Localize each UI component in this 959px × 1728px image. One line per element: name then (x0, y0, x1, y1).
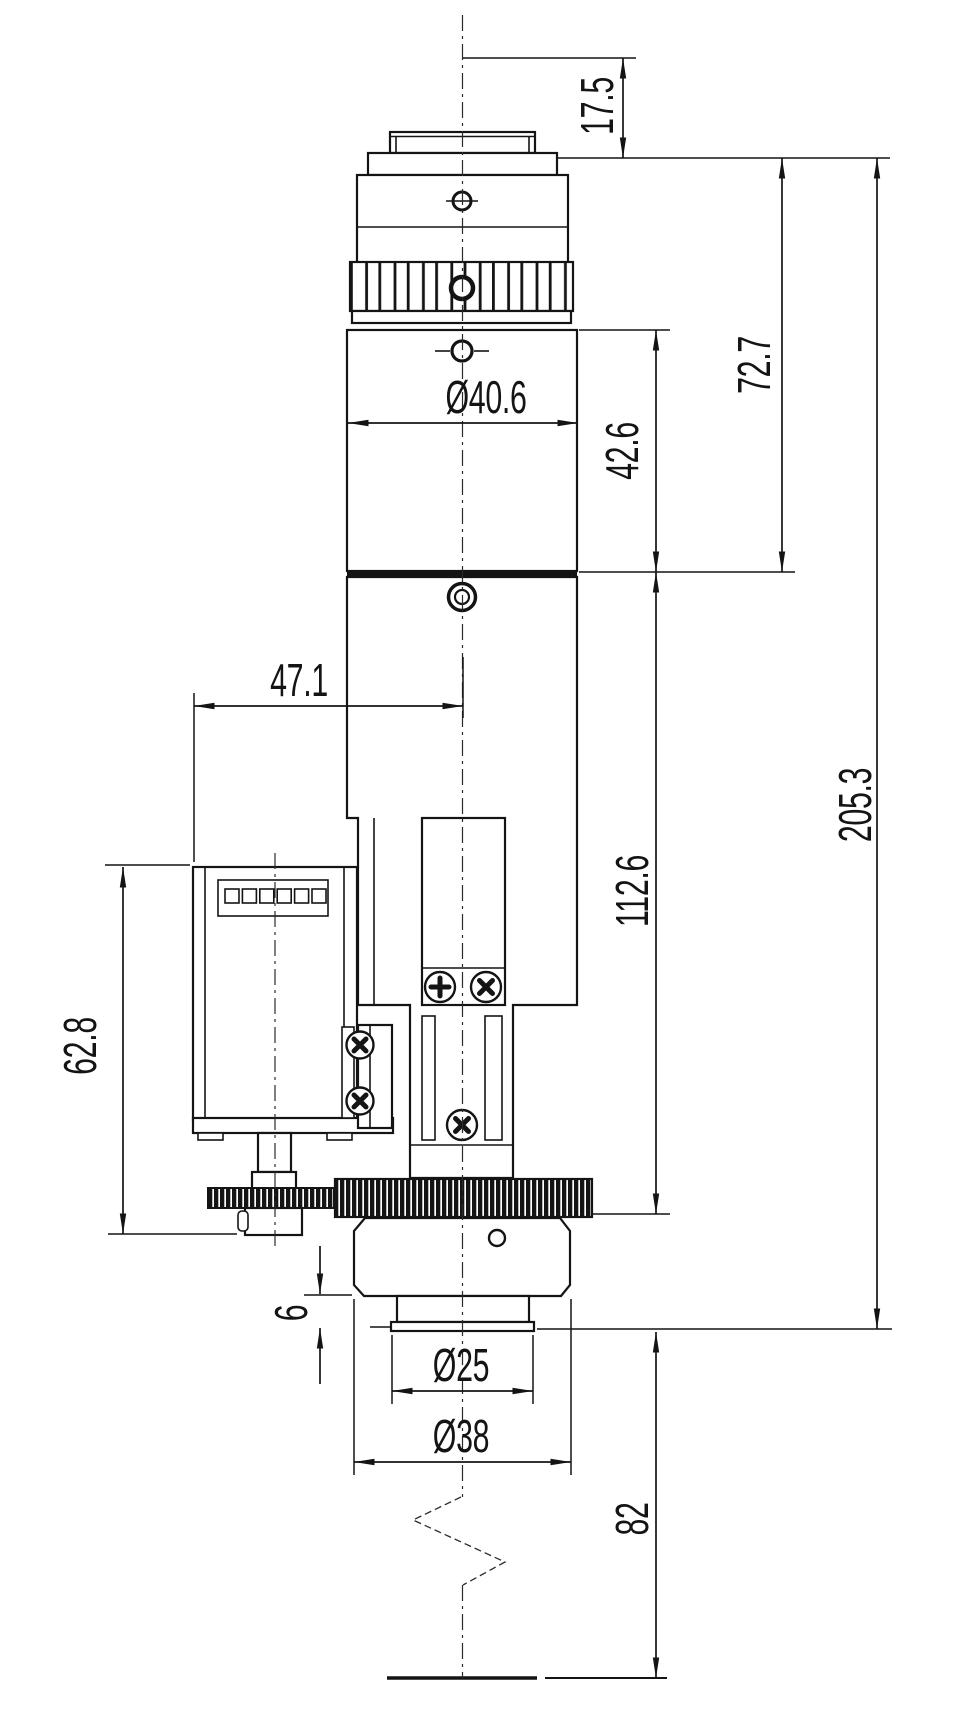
dim-mount-stub-height: 17.5 (573, 58, 624, 158)
dim-upper-body-height: 42.6 (598, 330, 656, 572)
bracket-screw-upper (347, 1032, 374, 1059)
dim-label-82: 82 (608, 1502, 659, 1535)
dim-label-40-6: Ø40.6 (445, 373, 526, 424)
dim-lower-body-height: 112.6 (608, 572, 659, 1214)
dim-label-42-6: 42.6 (598, 422, 649, 480)
pinion-hub (245, 1208, 302, 1235)
dim-head-assembly-height: 72.7 (730, 158, 782, 572)
focus-gear-ring (335, 1179, 592, 1217)
break-line (413, 1497, 505, 1585)
knurled-ring (350, 262, 573, 323)
dim-front-step-height: 6 (267, 1246, 320, 1384)
motor-foot-left (198, 1133, 223, 1140)
guide-rail-right (485, 1016, 502, 1140)
dim-working-distance: 82 (608, 1332, 659, 1678)
dim-overall-length: 205.3 (831, 158, 882, 1329)
technical-drawing: 17.5 72.7 42.6 112.6 205.3 62.8 (0, 0, 959, 1728)
dim-front-barrel-diameter: Ø38 (354, 1412, 571, 1463)
dim-front-flange-diameter: Ø25 (392, 1341, 533, 1392)
knurl-lower-band (352, 311, 571, 323)
dim-label-17-5: 17.5 (573, 77, 624, 135)
dim-label-62-8: 62.8 (56, 1017, 107, 1075)
dim-label-6: 6 (267, 1305, 318, 1322)
phillips-screw-right (471, 972, 501, 1002)
dim-label-112-6: 112.6 (608, 855, 659, 927)
dim-label-38: Ø38 (433, 1412, 489, 1463)
pinion-gear (208, 1188, 334, 1208)
barrel-hole (489, 1230, 505, 1246)
dim-label-47-1: 47.1 (270, 656, 328, 707)
dim-label-72-7: 72.7 (730, 336, 781, 394)
drive-train (208, 1133, 334, 1235)
phillips-screw-left (425, 972, 455, 1002)
hub-tab (238, 1211, 248, 1231)
clamp-bracket (342, 1025, 392, 1128)
dim-motor-assembly-height: 62.8 (56, 867, 123, 1234)
bracket-screw-lower (347, 1088, 374, 1115)
motor-foot-right (327, 1133, 352, 1140)
lens-module-outline (193, 15, 667, 1678)
dim-label-25: Ø25 (433, 1341, 489, 1392)
guide-rail-left (422, 1016, 435, 1140)
dim-label-205-3: 205.3 (831, 768, 882, 842)
drawing-canvas: 17.5 72.7 42.6 112.6 205.3 62.8 (0, 0, 959, 1728)
shaft-coupling (252, 1172, 296, 1189)
